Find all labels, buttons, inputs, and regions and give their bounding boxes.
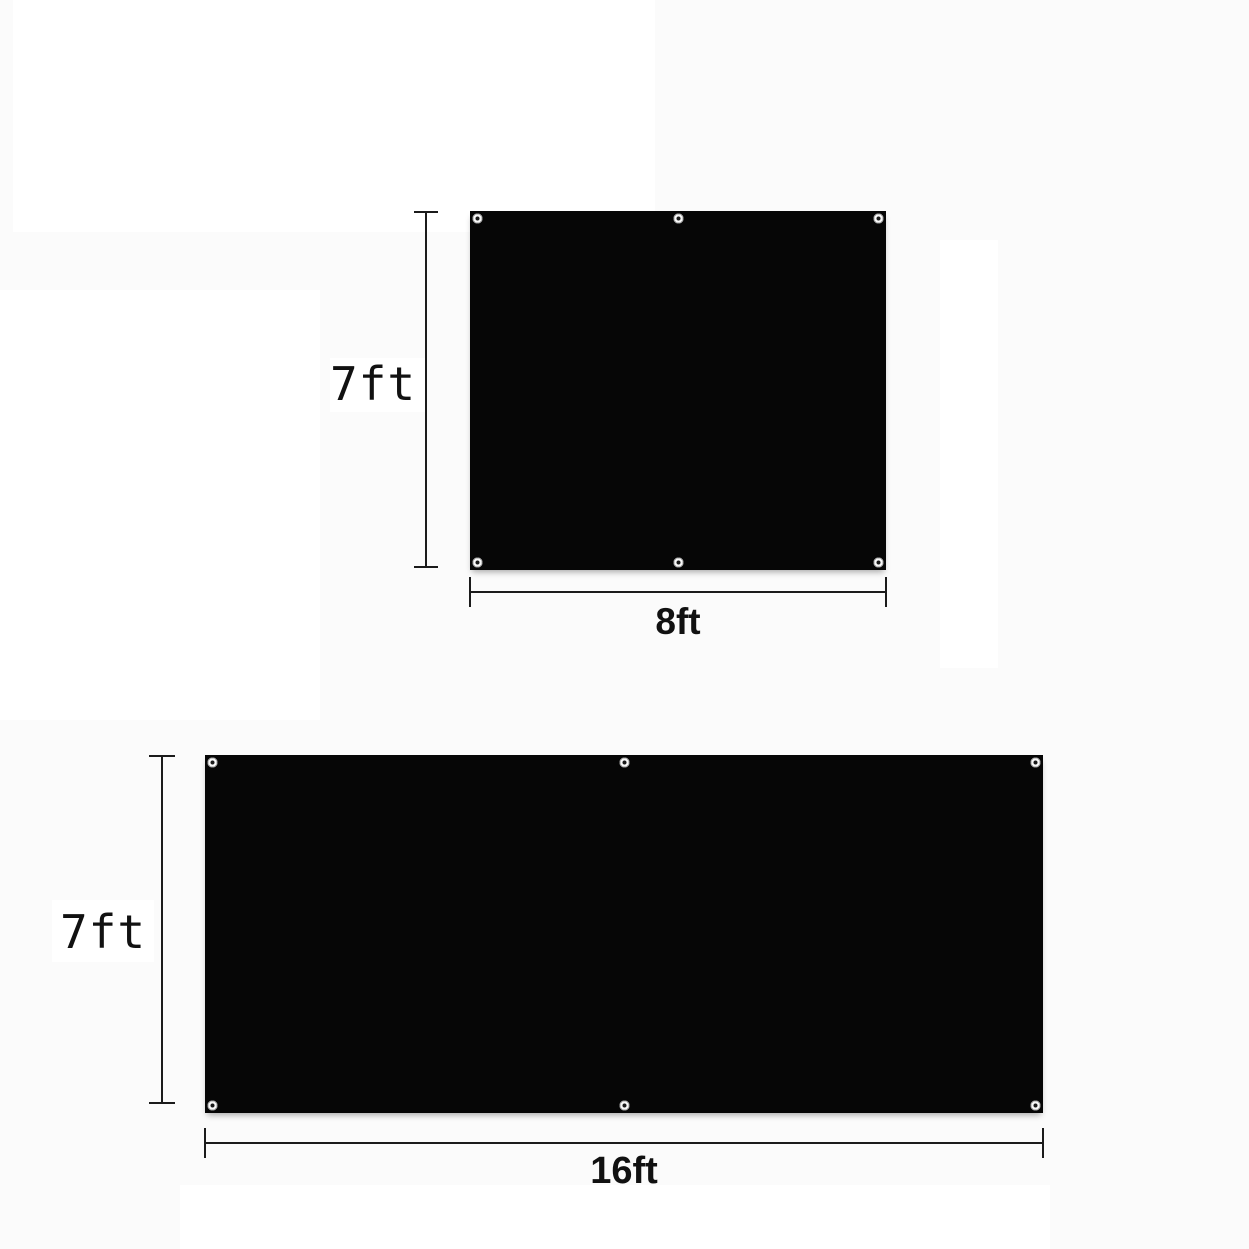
grommet-icon — [472, 213, 483, 224]
background-patch — [180, 1185, 1050, 1249]
grommet-icon — [207, 757, 218, 768]
grommet-icon — [619, 1100, 630, 1111]
dimension-line — [204, 1142, 1044, 1144]
height-label: 7ft — [325, 355, 421, 413]
background-patch — [940, 240, 998, 668]
grommet-icon — [673, 557, 684, 568]
background-patch — [13, 0, 655, 232]
grommet-icon — [472, 557, 483, 568]
tarp-dimension-diagram: 7ft 8ft 7ft — [0, 0, 1249, 1249]
dimension-line — [161, 755, 163, 1104]
dimension-end-cap — [414, 566, 438, 568]
tarp-rectangle-16x7 — [205, 755, 1043, 1113]
grommet-icon — [873, 213, 884, 224]
width-label: 8ft — [470, 601, 886, 643]
grommet-icon — [873, 557, 884, 568]
dimension-line — [425, 211, 427, 568]
dimension-line — [469, 591, 887, 593]
grommet-icon — [619, 757, 630, 768]
height-label: 7ft — [50, 903, 156, 961]
tarp-rectangle-8x7 — [470, 211, 886, 570]
width-label: 16ft — [205, 1150, 1043, 1193]
dimension-end-cap — [149, 1102, 175, 1104]
grommet-icon — [1030, 1100, 1041, 1111]
grommet-icon — [673, 213, 684, 224]
grommet-icon — [207, 1100, 218, 1111]
background-patch — [48, 646, 313, 678]
grommet-icon — [1030, 757, 1041, 768]
